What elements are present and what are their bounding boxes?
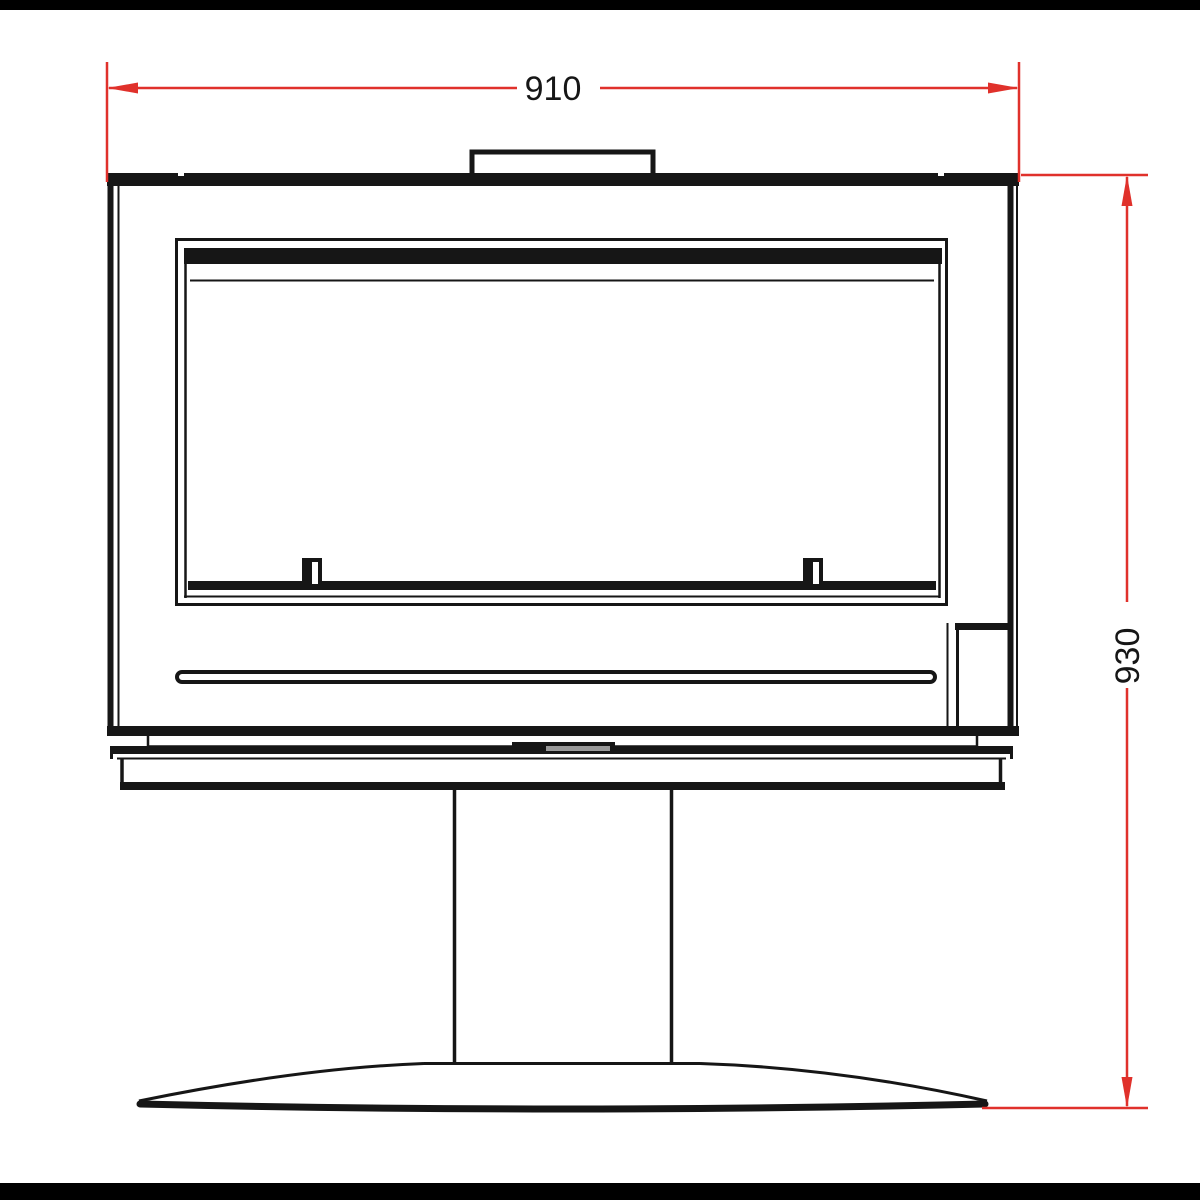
technical-drawing-page: 910 930 <box>0 0 1200 1200</box>
stove-front-elevation-drawing: 910 930 <box>0 0 1200 1200</box>
height-dimension-label: 930 <box>1109 628 1147 685</box>
top-plate-notch-left <box>178 173 184 176</box>
top-frame-bar <box>0 0 1200 10</box>
glass-clip-right <box>803 558 823 590</box>
glass-bottom-frame-band <box>188 581 936 590</box>
top-plate <box>107 173 1019 186</box>
top-plate-notch-right <box>938 173 944 176</box>
width-dimension-label: 910 <box>525 70 582 108</box>
bottom-frame-bar <box>0 1183 1200 1200</box>
base-handle <box>546 746 610 751</box>
control-box-top-band <box>955 623 1012 630</box>
glass-clip-right-slot <box>813 562 819 584</box>
glass-clip-left <box>302 558 322 590</box>
glass-clip-left-slot <box>312 562 318 584</box>
glass-top-frame-band <box>184 248 942 264</box>
plinth-bottom-band <box>120 782 1005 790</box>
